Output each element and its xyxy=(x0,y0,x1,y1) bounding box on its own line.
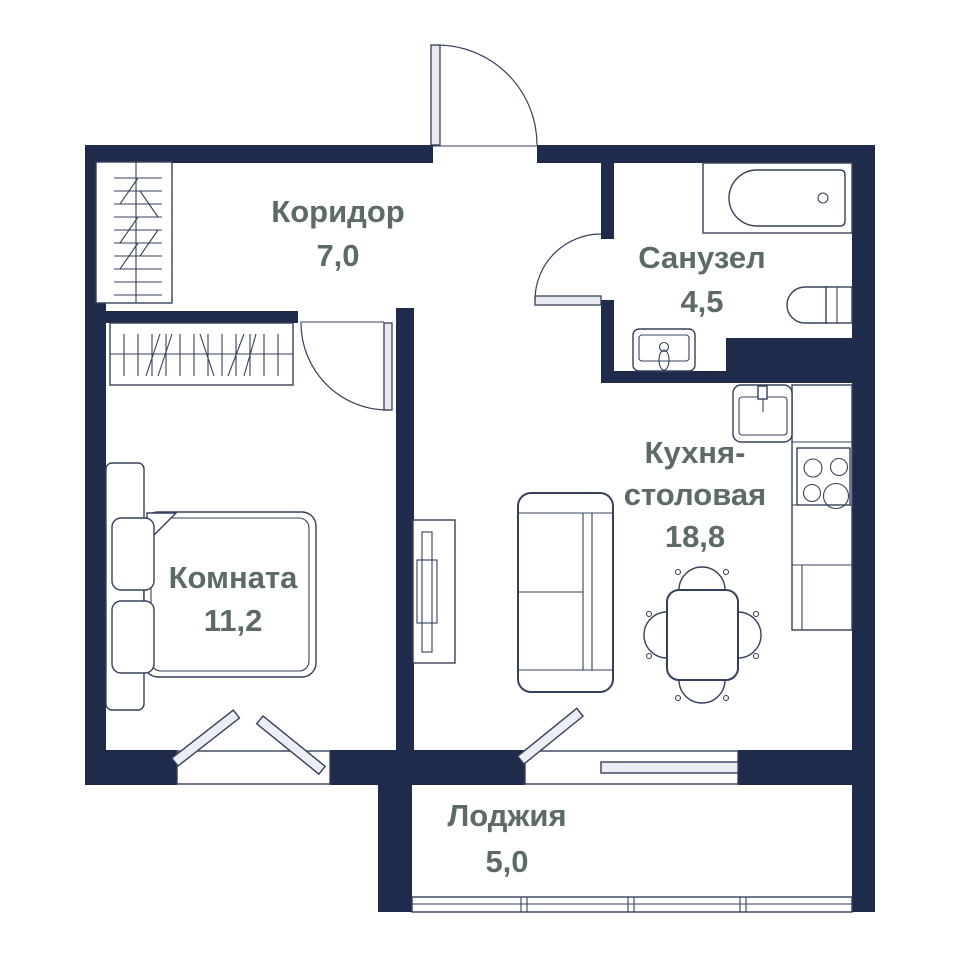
sliding-panel xyxy=(601,762,738,773)
stove xyxy=(797,448,850,509)
kitchen-sink xyxy=(733,385,792,442)
floor-plan-drawing: Коридор 7,0 Санузел 4,5 Кухня- столовая … xyxy=(0,0,960,960)
bathtub xyxy=(703,163,852,233)
chair xyxy=(644,612,667,658)
kitchen-counter xyxy=(792,385,852,630)
wall-top-right xyxy=(537,145,875,163)
bathroom-door-leaf xyxy=(535,296,601,305)
room-label-corridor: Коридор xyxy=(271,194,404,229)
room-area-loggia: 5,0 xyxy=(485,844,528,879)
wall-bathroom-left-upper xyxy=(601,163,614,239)
dining-table xyxy=(667,590,738,680)
faucet-icon xyxy=(758,386,767,399)
chair xyxy=(679,680,725,703)
entrance-door-leaf xyxy=(431,45,440,145)
floor-plan: Коридор 7,0 Санузел 4,5 Кухня- столовая … xyxy=(0,0,960,960)
wall-bottom-living-right xyxy=(738,750,875,785)
dining-table-set xyxy=(644,567,761,703)
room-label-kitchen-line1: Кухня- xyxy=(645,435,746,470)
balcony-door xyxy=(518,708,738,784)
entrance-door xyxy=(431,45,537,146)
wall-corridor-bedroom xyxy=(85,311,298,323)
room-label-bedroom: Комната xyxy=(169,560,299,595)
wall-bottom-bedroom-left xyxy=(85,750,177,785)
room-area-bathroom: 4,5 xyxy=(680,284,723,319)
sofa xyxy=(518,493,613,692)
tv-stand xyxy=(413,520,455,663)
wall-bedroom-living xyxy=(396,308,414,750)
pillow xyxy=(112,518,154,590)
wall-bottom-living-left xyxy=(412,750,525,785)
bedroom-door-swing-arc xyxy=(301,323,388,410)
room-label-kitchen-line2: столовая xyxy=(624,477,766,512)
bedroom-door xyxy=(300,322,392,410)
room-area-corridor: 7,0 xyxy=(316,238,359,273)
wall-bathroom-kitchen-block xyxy=(726,338,852,383)
chair xyxy=(738,612,761,658)
bathroom-sink xyxy=(633,329,695,371)
room-label-loggia: Лоджия xyxy=(447,798,566,833)
loggia-glazing xyxy=(412,897,852,912)
wall-loggia-left xyxy=(378,750,412,912)
chair xyxy=(679,567,725,590)
room-area-kitchen: 18,8 xyxy=(665,519,725,554)
toilet-tank xyxy=(826,287,852,323)
wall-top-left xyxy=(85,145,433,163)
bedroom-wardrobe xyxy=(110,323,293,385)
room-label-bathroom: Санузел xyxy=(638,240,766,275)
entrance-door-swing-arc xyxy=(437,45,537,145)
pillow xyxy=(112,601,154,673)
wall-bathroom-bottom xyxy=(601,371,726,383)
bathroom-door-swing-arc xyxy=(535,234,601,300)
bedroom-door-leaf xyxy=(384,323,392,410)
corridor-wardrobe xyxy=(96,162,172,303)
toilet xyxy=(787,287,852,323)
bathroom-door xyxy=(535,234,601,305)
room-area-bedroom: 11,2 xyxy=(204,603,263,638)
bedroom-window xyxy=(172,710,330,784)
wall-bathroom-left-lower xyxy=(601,300,614,383)
toilet-bowl xyxy=(787,287,828,323)
wall-right xyxy=(852,145,875,912)
